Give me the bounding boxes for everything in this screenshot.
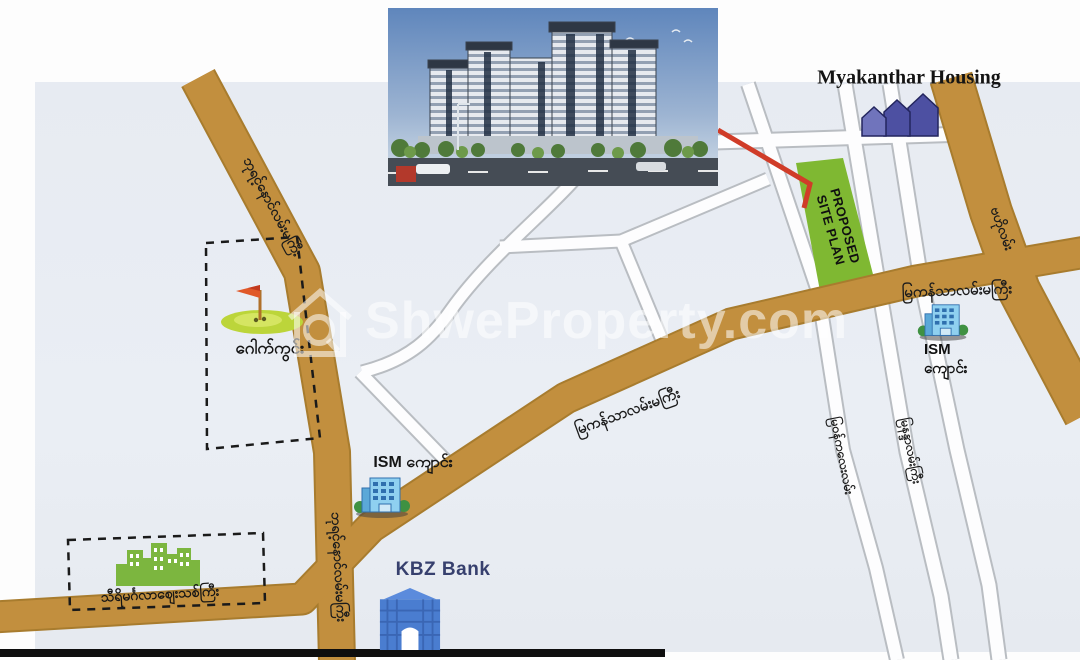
bottom-scan-bar xyxy=(0,649,665,657)
ism-east-line2: ကျောင်း xyxy=(924,359,968,378)
kbz-bank-label: KBZ Bank xyxy=(396,559,491,581)
location-map: Myakanthar Housing ဂေါက်ကွင်း သီရိမင်္ဂလ… xyxy=(0,0,1080,660)
school-building-icon xyxy=(352,474,412,523)
ism-east-line1: ISM xyxy=(924,340,968,359)
blue-houses-icon xyxy=(860,92,940,143)
golf-course-label: ဂေါက်ကွင်း xyxy=(236,338,305,363)
ism-school-east-label: ISM ကျောင်း xyxy=(924,340,968,378)
property-rendering-photo xyxy=(388,8,718,186)
myakanthar-housing-label: Myakanthar Housing xyxy=(817,67,1001,90)
bank-building-icon xyxy=(372,588,448,655)
ism-school-center-label: ISM ကျောင်း xyxy=(373,451,452,475)
myakanthar-road-label-east: မြကန်သာလမ်းမကြီး xyxy=(902,279,1013,305)
